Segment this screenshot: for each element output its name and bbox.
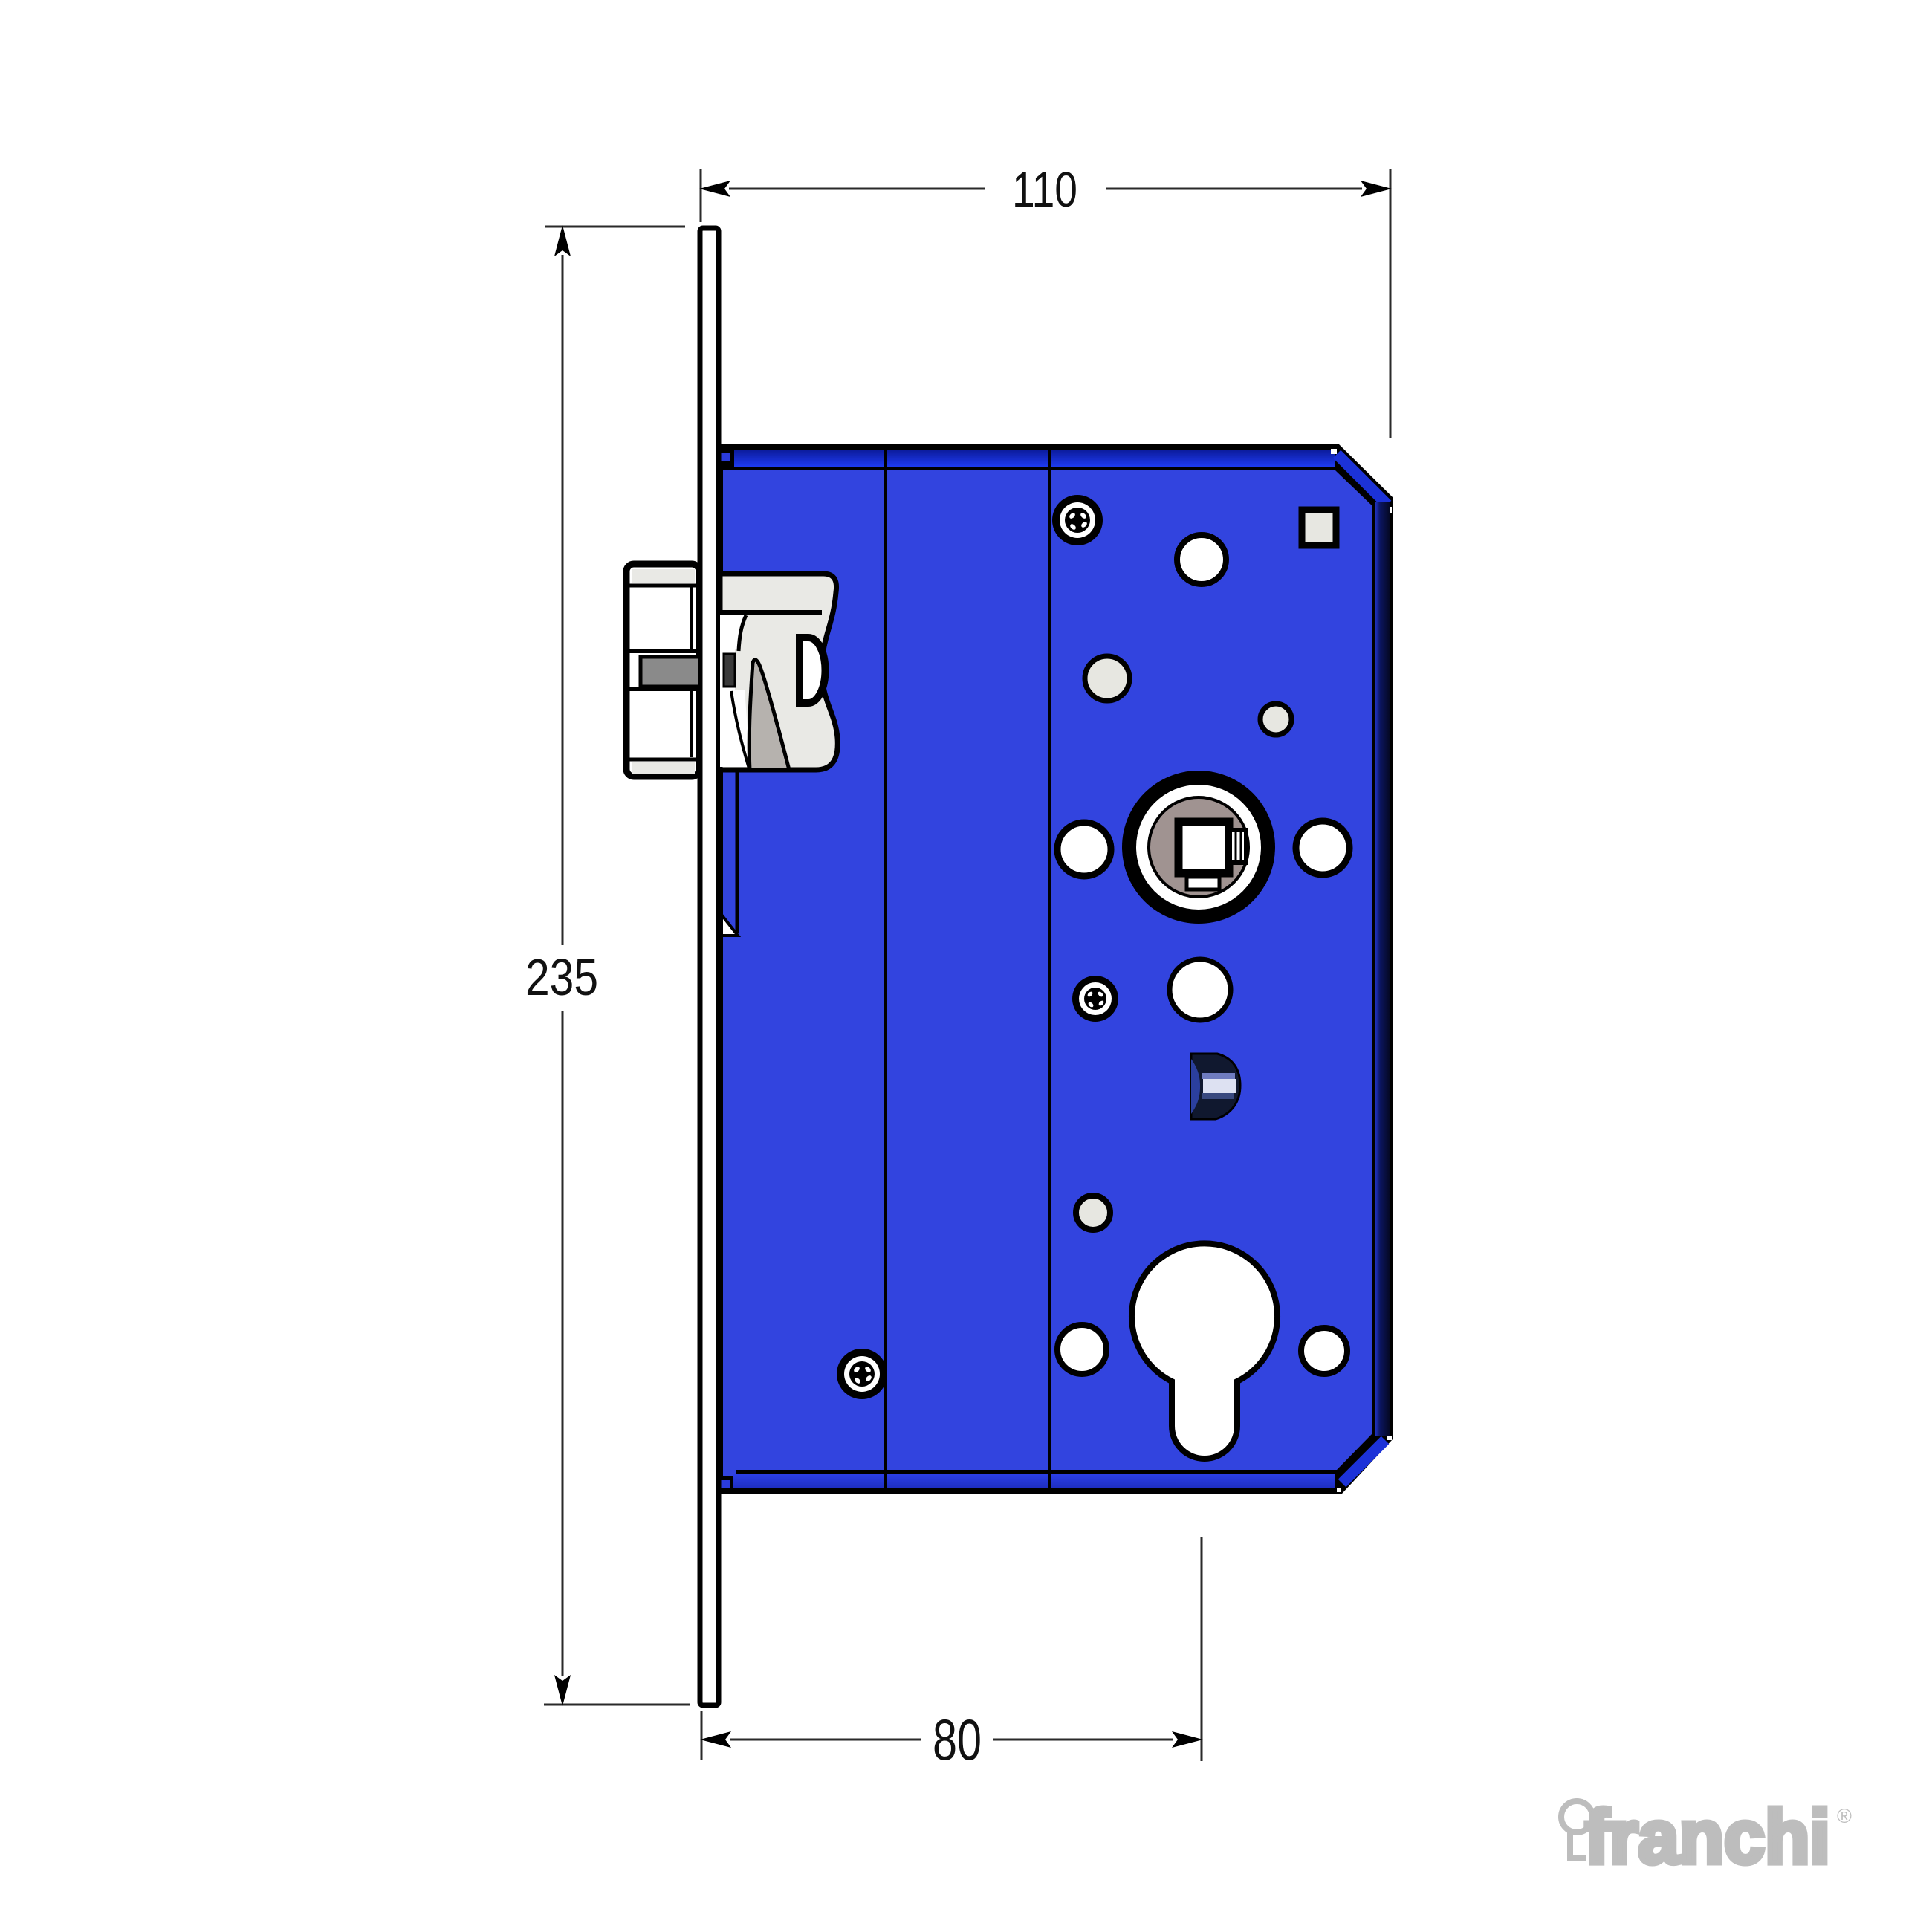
- svg-text:franchi: franchi: [1585, 1795, 1830, 1879]
- svg-text:110: 110: [1012, 162, 1077, 218]
- svg-text:235: 235: [525, 948, 598, 1006]
- svg-text:®: ®: [1837, 1805, 1852, 1827]
- svg-text:80: 80: [933, 1707, 982, 1772]
